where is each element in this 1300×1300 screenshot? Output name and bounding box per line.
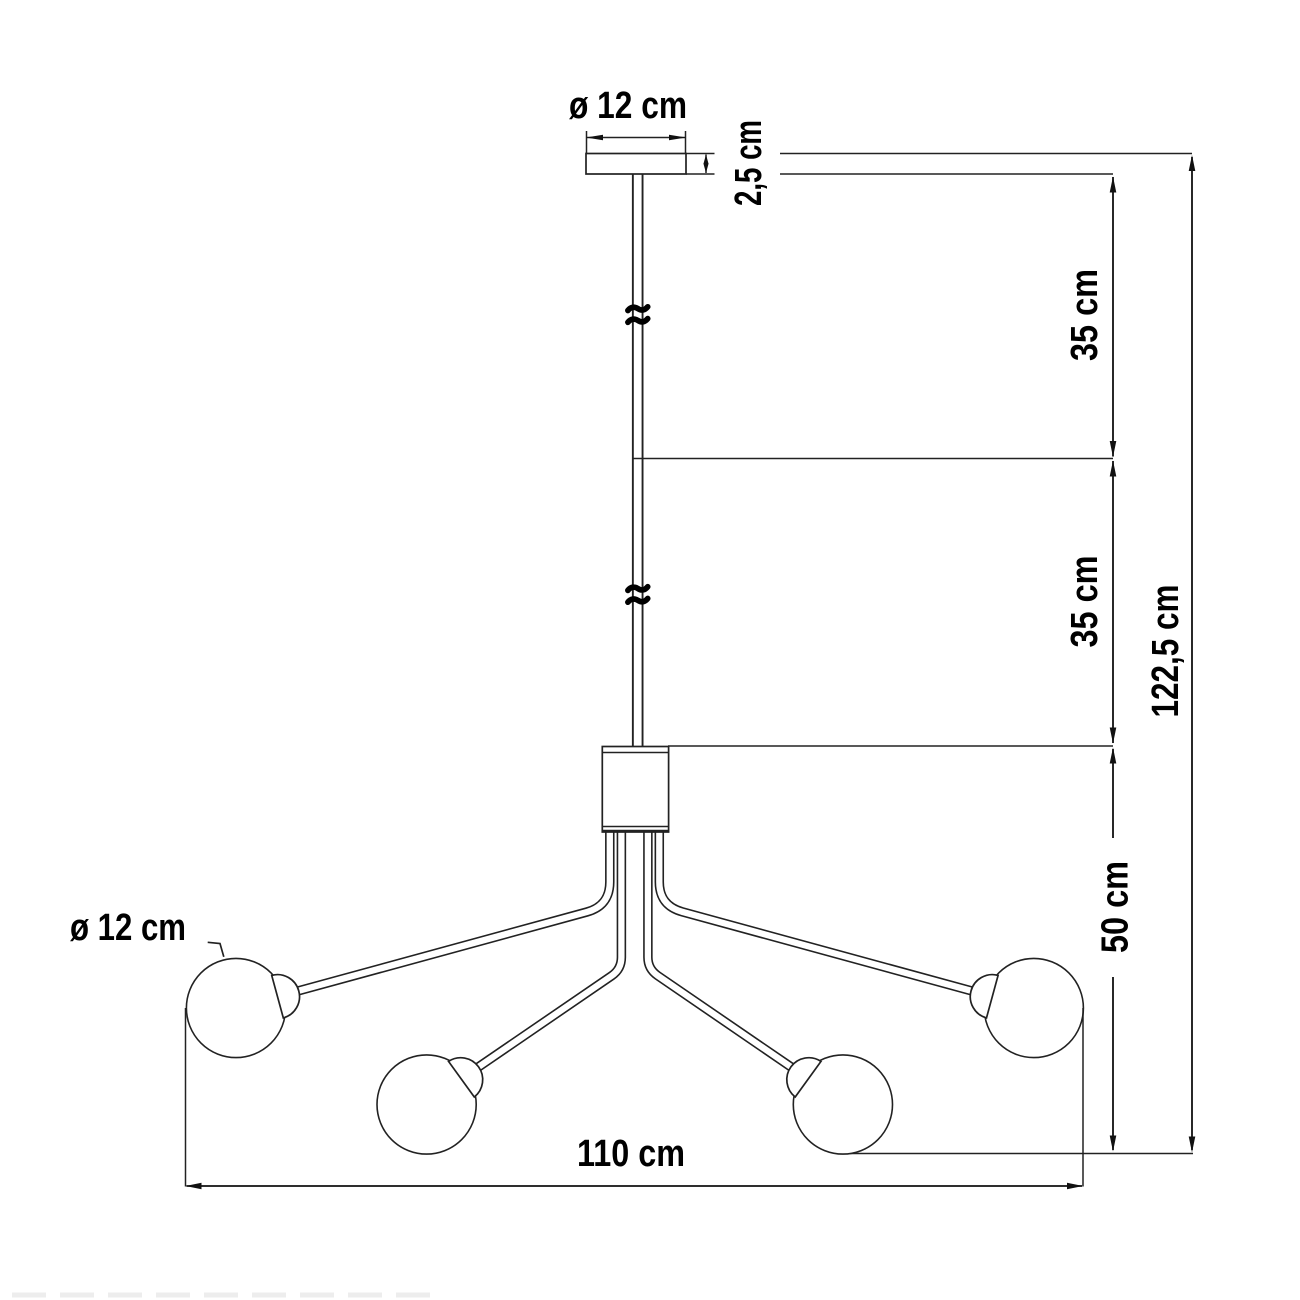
svg-text:ø 12 cm: ø 12 cm xyxy=(70,907,186,949)
svg-text:50 cm: 50 cm xyxy=(1095,861,1137,953)
svg-text:35 cm: 35 cm xyxy=(1064,269,1106,361)
svg-text:2,5 cm: 2,5 cm xyxy=(728,120,770,206)
svg-text:110 cm: 110 cm xyxy=(577,1133,685,1175)
svg-text:35 cm: 35 cm xyxy=(1064,556,1106,648)
svg-text:122,5 cm: 122,5 cm xyxy=(1145,585,1187,718)
svg-text:ø 12 cm: ø 12 cm xyxy=(569,85,687,127)
